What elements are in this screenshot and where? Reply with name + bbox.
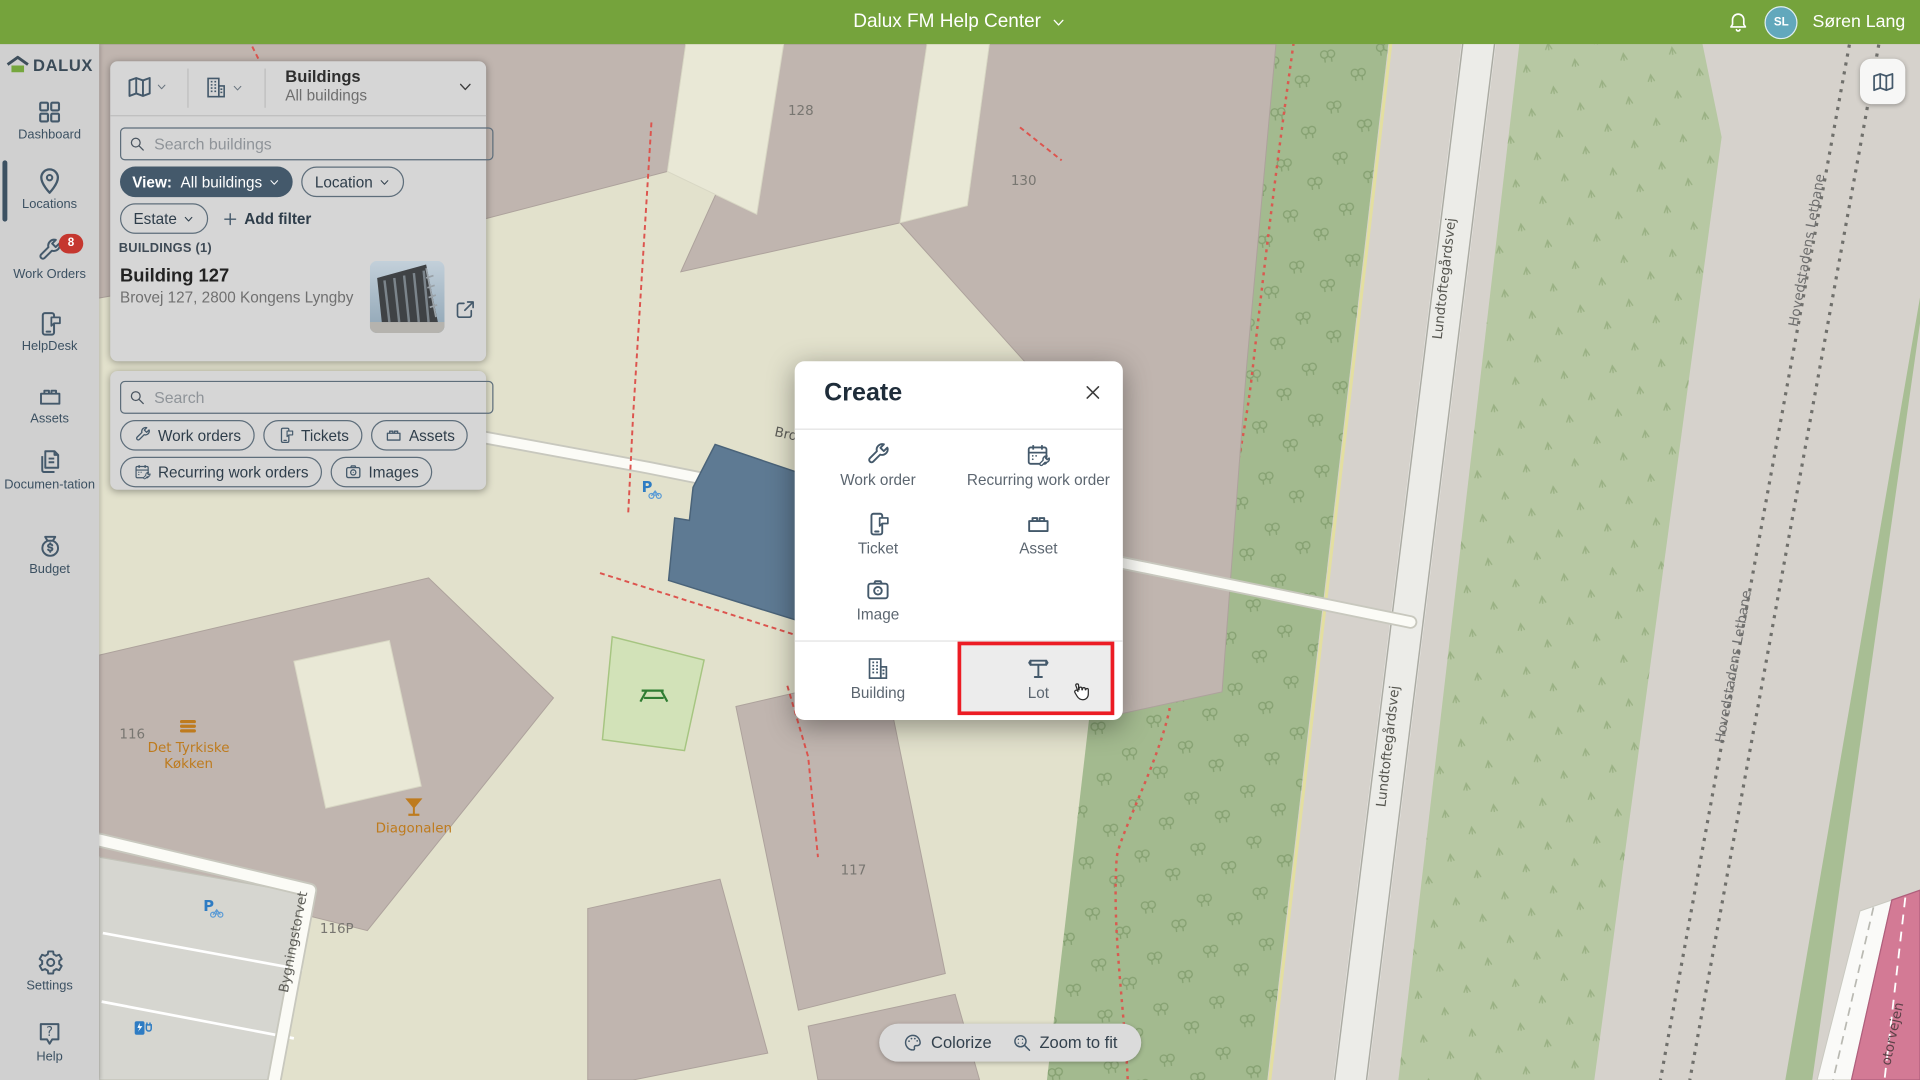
user-name[interactable]: Søren Lang [1813,12,1906,32]
open-external-icon[interactable] [454,299,476,321]
divider [264,69,265,108]
search-icon [129,135,146,153]
add-filter-button[interactable]: Add filter [217,203,316,234]
colorize-button[interactable]: Colorize [903,1032,992,1053]
documents-icon [35,447,64,476]
sidebar-item-dashboard[interactable]: Dashboard [0,98,99,142]
location-pin-icon [34,165,65,196]
helpdesk-phone-icon [36,310,64,338]
global-search-input[interactable] [152,387,485,408]
sidebar-item-help[interactable]: Help [0,1020,99,1064]
create-option-building[interactable]: Building [798,655,957,702]
gear-icon [35,948,64,977]
asset-box-icon [36,383,63,410]
map-icon [1870,69,1894,93]
create-option-ticket[interactable]: Ticket [798,511,957,558]
map-label-diagonalen: Diagonalen [376,822,452,837]
view-filter-chip[interactable]: View: All buildings [120,167,293,198]
work-orders-badge: 8 [59,234,83,254]
notifications-bell-icon[interactable] [1727,10,1750,33]
map-label-restaurant-1: Det Tyrkiske [148,741,230,756]
zoom-fit-icon [1011,1032,1032,1053]
create-option-lot[interactable]: Lot [959,655,1118,702]
app-root: P P 128 130 117 116 116P Det Tyrkiske Kø… [0,0,1920,1080]
building-name: Building 127 [120,266,229,287]
modal-title: Create [824,378,902,407]
building-icon [864,655,891,682]
calendar-wrench-icon [1025,442,1052,469]
signpost-icon [1025,655,1052,682]
calendar-wrench-icon [133,463,151,481]
map-layer-picker[interactable] [126,73,168,100]
buildings-panel: Buildings All buildings View: All buildi… [110,61,486,361]
map-label-116p: 116P [320,922,354,937]
dalux-logo[interactable]: DALUX [0,55,99,76]
wrench-icon [864,442,891,469]
dashboard-grid-icon [36,98,64,126]
global-search[interactable] [120,381,493,414]
chevron-down-icon [268,176,280,188]
sidebar-item-helpdesk[interactable]: HelpDesk [0,310,99,354]
zoom-to-fit-button[interactable]: Zoom to fit [1011,1032,1117,1053]
search-chip-row-2: Recurring work orders Images [120,457,432,488]
dalux-house-icon [6,55,29,76]
divider [795,429,1123,430]
map-toolbar: Colorize Zoom to fit [879,1024,1141,1062]
create-option-asset[interactable]: Asset [959,511,1118,558]
divider [187,69,188,108]
create-option-recurring-work-order[interactable]: Recurring work order [959,442,1118,489]
filter-row-2: Estate Add filter [120,203,316,234]
camera-icon [344,463,362,481]
chip-images[interactable]: Images [331,457,433,488]
sidebar-item-budget[interactable]: Budget [0,531,99,576]
map-label-128: 128 [788,104,814,119]
sidebar-item-settings[interactable]: Settings [0,948,99,993]
buildings-search-input[interactable] [152,133,485,154]
restaurant-icon [180,720,196,732]
building-view-picker[interactable] [203,75,243,101]
view-title: Buildings [285,67,367,87]
view-subtitle: All buildings [285,87,367,105]
create-option-image[interactable]: Image [798,577,957,624]
logo-text: DALUX [33,56,93,74]
buildings-panel-header: Buildings All buildings [110,61,486,116]
ticket-phone-icon [277,426,295,444]
create-modal: Create Work order Recurring work order T… [795,361,1123,720]
map-icon [126,73,153,100]
building-list-item[interactable]: Building 127 Brovej 127, 2800 Kongens Ly… [110,255,486,353]
estate-filter-chip[interactable]: Estate [120,203,209,234]
avatar[interactable]: SL [1765,6,1798,39]
chevron-down-icon [379,176,391,188]
building-icon [203,75,229,101]
app-title-menu[interactable]: Dalux FM Help Center [853,11,1066,33]
mouse-cursor-icon [1067,675,1094,704]
help-question-icon [36,1020,64,1048]
sidebar-item-work-orders[interactable]: Work Orders [0,238,99,282]
ticket-phone-icon [864,511,891,538]
building-thumbnail[interactable] [370,261,445,333]
location-filter-chip[interactable]: Location [301,167,404,198]
sidebar-item-documentation[interactable]: Documen-tation [0,447,99,492]
chip-assets[interactable]: Assets [371,420,468,451]
view-selector[interactable]: Buildings All buildings [285,67,367,105]
top-bar: Dalux FM Help Center SL Søren Lang [0,0,1920,44]
camera-icon [864,577,891,604]
filter-row-1: View: All buildings Location [120,167,405,198]
map-style-button[interactable] [1860,59,1905,104]
buildings-search[interactable] [120,127,493,160]
close-icon[interactable] [1082,382,1103,403]
moneybag-icon [35,531,64,560]
plus-icon [222,210,239,227]
sidebar-item-locations[interactable]: Locations [0,165,99,212]
building-address: Brovej 127, 2800 Kongens Lyngby [120,289,353,306]
chevron-down-icon[interactable] [457,78,474,95]
asset-box-icon [384,426,402,444]
search-chip-row-1: Work orders Tickets Assets [120,420,468,451]
map-label-130: 130 [1011,174,1037,189]
chip-tickets[interactable]: Tickets [263,420,362,451]
asset-box-icon [1025,511,1052,538]
palette-icon [903,1032,924,1053]
page-title: Dalux FM Help Center [853,11,1041,33]
map-label-116: 116 [119,727,145,742]
create-option-work-order[interactable]: Work order [798,442,957,489]
chevron-down-icon [231,81,243,93]
chevron-down-icon [156,81,168,93]
map-label-restaurant-2: Køkken [164,757,213,772]
sidebar: DALUX Dashboard Locations Work Orders 8 … [0,44,99,1080]
sidebar-item-assets[interactable]: Assets [0,383,99,426]
search-icon [129,388,146,406]
chip-work-orders[interactable]: Work orders [120,420,255,451]
wrench-icon [133,426,151,444]
global-search-panel: Work orders Tickets Assets Recurring wor… [110,371,486,490]
chevron-down-icon [1051,14,1067,30]
chip-recurring-work-orders[interactable]: Recurring work orders [120,457,322,488]
chevron-down-icon [183,212,195,224]
map-label-117: 117 [841,863,867,878]
